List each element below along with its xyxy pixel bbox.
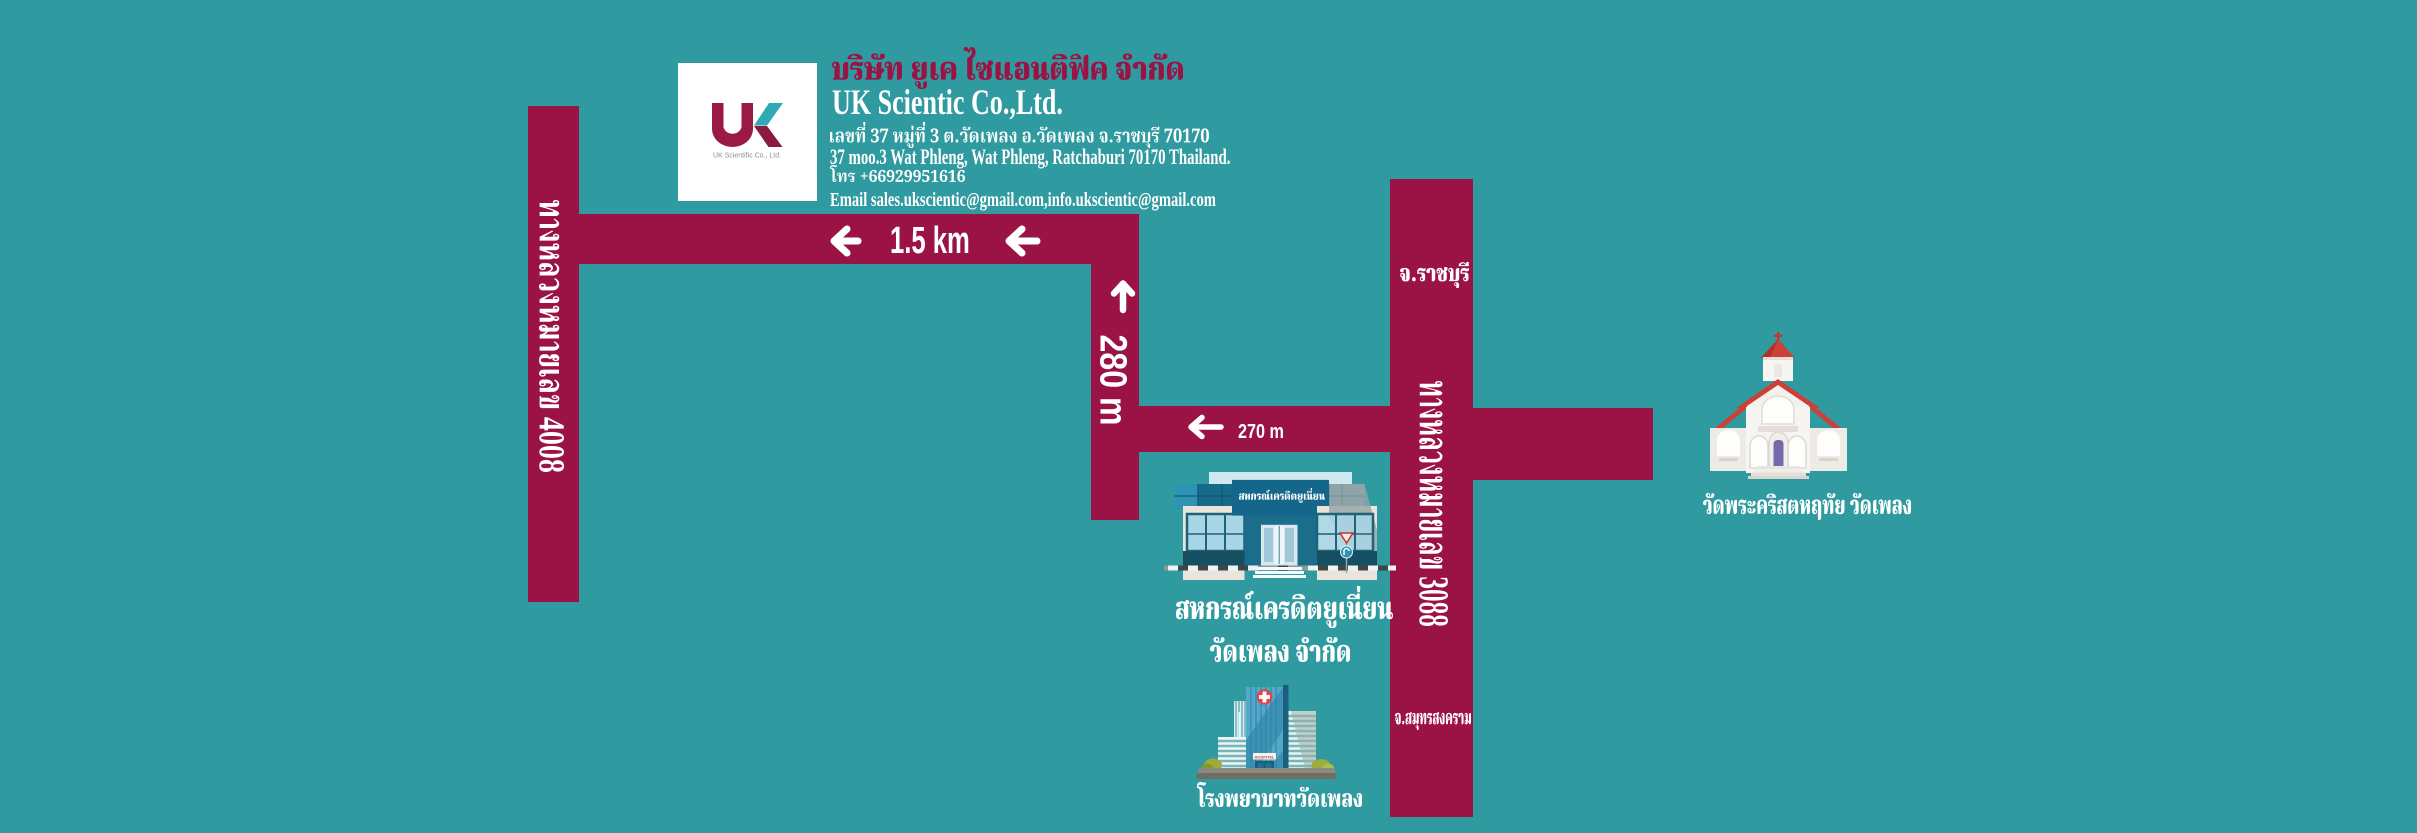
svg-text:UK Scientific Co., Ltd.: UK Scientific Co., Ltd.	[713, 153, 781, 160]
svg-text:HOSPITAL: HOSPITAL	[1255, 754, 1275, 759]
